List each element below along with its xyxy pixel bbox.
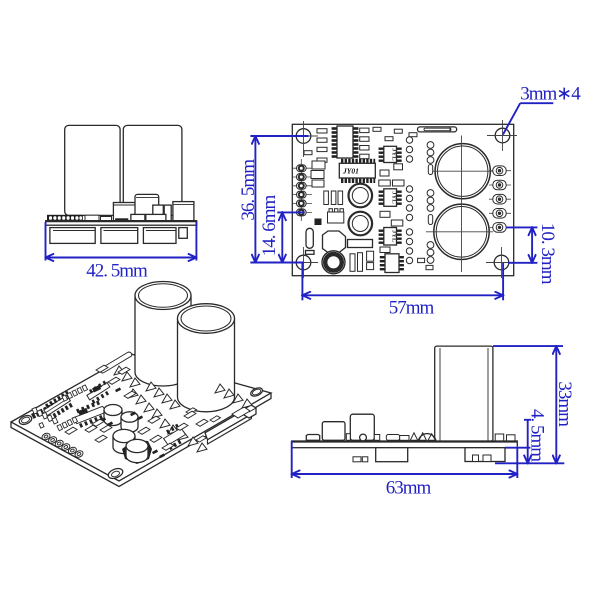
svg-text:33mm: 33mm	[554, 381, 575, 427]
svg-text:63mm: 63mm	[386, 478, 432, 499]
svg-text:36. 5mm: 36. 5mm	[238, 159, 259, 221]
svg-text:10. 3mm: 10. 3mm	[537, 223, 558, 285]
svg-text:3mm∗4: 3mm∗4	[520, 84, 581, 105]
svg-text:14. 6mm: 14. 6mm	[259, 195, 280, 257]
svg-text:42. 5mm: 42. 5mm	[86, 261, 148, 282]
svg-text:JYL: JYL	[391, 148, 398, 161]
svg-text:JYL: JYL	[391, 191, 398, 204]
svg-text:JYL: JYL	[391, 230, 398, 243]
svg-text:4. 5mm: 4. 5mm	[527, 409, 548, 462]
svg-text:57mm: 57mm	[389, 298, 435, 319]
svg-text:JY01: JY01	[342, 167, 359, 176]
